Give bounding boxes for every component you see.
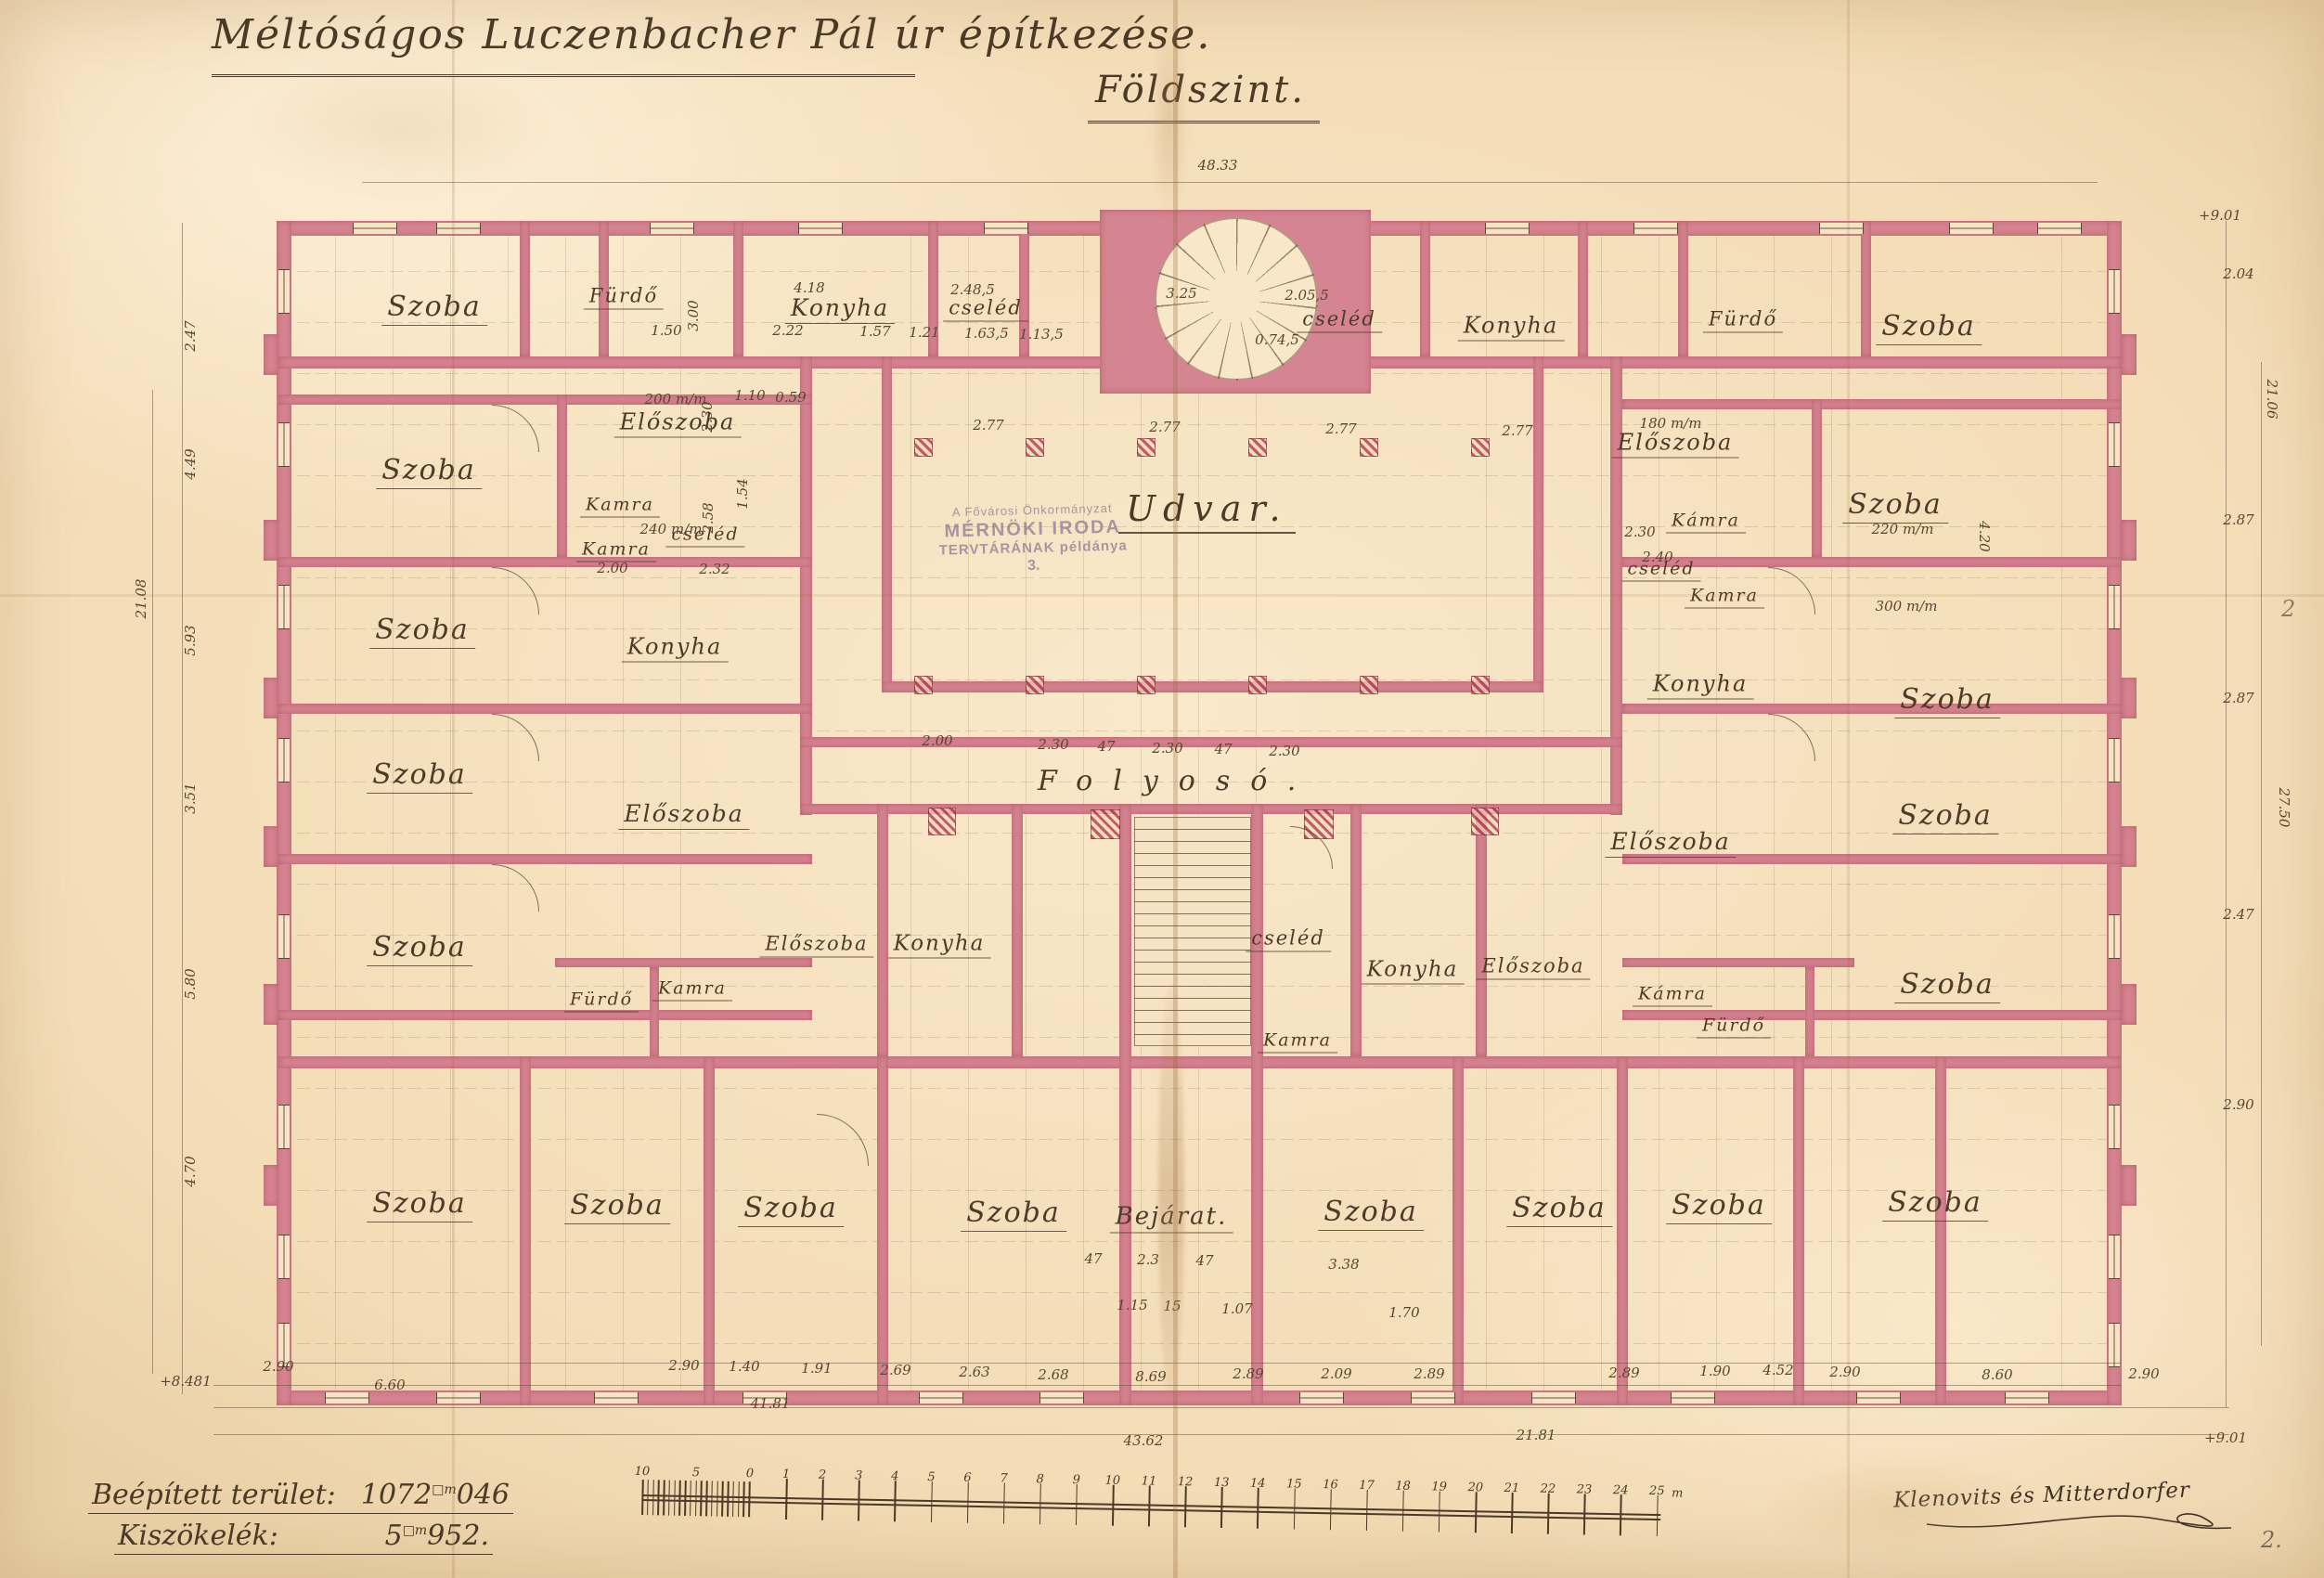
scale-bar-major-tick bbox=[1656, 1495, 1658, 1536]
wall bbox=[1533, 356, 1543, 692]
window-opening bbox=[2109, 738, 2120, 783]
scale-bar-label: 23 bbox=[1577, 1482, 1593, 1496]
room-label: Szoba bbox=[1666, 1189, 1772, 1224]
dimension-label: 2.90 bbox=[668, 1357, 699, 1374]
window-opening bbox=[2037, 223, 2082, 234]
scale-bar-minor-tick bbox=[652, 1480, 654, 1515]
wall bbox=[277, 1390, 2121, 1405]
wall bbox=[264, 678, 278, 718]
scale-bar-major-tick bbox=[1620, 1494, 1621, 1535]
room-label: cseléd bbox=[943, 297, 1028, 322]
window-opening bbox=[325, 1392, 369, 1403]
scale-bar-major-tick bbox=[967, 1482, 969, 1523]
scale-bar-minor-tick bbox=[668, 1481, 670, 1516]
title-underline bbox=[212, 74, 915, 77]
wall bbox=[264, 520, 278, 561]
dimension-line bbox=[2226, 221, 2227, 1407]
dimension-label: 2.89 bbox=[1233, 1365, 1263, 1382]
scale-bar-line bbox=[641, 1494, 1660, 1516]
room-label: Konyha bbox=[1362, 958, 1465, 985]
room-label: Kámra bbox=[1666, 511, 1746, 534]
scale-bar-major-tick bbox=[1547, 1494, 1549, 1534]
dimension-label: 4.18 bbox=[794, 279, 824, 296]
dimension-label: 47 bbox=[1195, 1252, 1213, 1269]
scale-bar-major-tick bbox=[785, 1479, 787, 1520]
wall bbox=[264, 1165, 278, 1206]
room-label: Szoba bbox=[376, 454, 482, 489]
dimension-label: 4.20 bbox=[1976, 521, 1993, 551]
room-label: Előszoba bbox=[759, 933, 873, 958]
dimension-label: 1.21 bbox=[909, 324, 939, 341]
wall bbox=[278, 1010, 812, 1020]
dimension-label: 2.58 bbox=[700, 502, 717, 533]
window-opening bbox=[278, 738, 290, 783]
wall bbox=[1812, 399, 1822, 557]
dimension-label: 1.90 bbox=[1699, 1363, 1730, 1379]
projection-row: Kiszökelék: 5□m952. bbox=[114, 1520, 493, 1555]
hatched-pier bbox=[1137, 676, 1156, 694]
dimension-label: 21.08 bbox=[133, 579, 149, 619]
dimension-label: 15 bbox=[1163, 1298, 1181, 1314]
dimension-label: 3.25 bbox=[1166, 285, 1196, 302]
room-label: Szoba bbox=[1318, 1196, 1424, 1231]
scale-bar-label: 17 bbox=[1359, 1479, 1375, 1493]
scale-bar-minor-tick bbox=[641, 1480, 643, 1515]
scale-bar-minor-tick bbox=[705, 1481, 707, 1516]
dimension-label: 27.50 bbox=[2276, 788, 2292, 828]
hatched-pier bbox=[1360, 438, 1378, 457]
wall bbox=[520, 1056, 531, 1405]
wall bbox=[1678, 221, 1688, 356]
hatched-pier bbox=[1248, 676, 1267, 694]
wall bbox=[2122, 520, 2137, 561]
wall bbox=[264, 334, 278, 375]
window-opening bbox=[2109, 1105, 2120, 1149]
dimension-line bbox=[213, 1434, 2229, 1435]
dimension-label: 43.62 bbox=[1124, 1432, 1164, 1449]
wall bbox=[1350, 804, 1362, 1056]
window-opening bbox=[1671, 1392, 1715, 1403]
dimension-label: +9.01 bbox=[2204, 1429, 2247, 1446]
wall bbox=[733, 221, 743, 356]
scale-bar-label: 24 bbox=[1613, 1483, 1629, 1497]
room-label: Konyha bbox=[1458, 313, 1565, 342]
wall bbox=[1793, 1056, 1804, 1405]
wall bbox=[2122, 334, 2137, 375]
room-label: Szoba bbox=[961, 1196, 1066, 1232]
dimension-label: 48.33 bbox=[1198, 157, 1238, 174]
wall bbox=[1012, 804, 1023, 1056]
scale-bar-label: 12 bbox=[1178, 1475, 1194, 1489]
room-label: Kamra bbox=[652, 978, 732, 1002]
dimension-label: 2.77 bbox=[1149, 419, 1180, 435]
scale-bar-major-tick bbox=[1148, 1486, 1150, 1527]
scale-bar-major-tick bbox=[1039, 1483, 1041, 1524]
dimension-label: 2.22 bbox=[772, 322, 803, 339]
scale-bar-major-tick bbox=[1184, 1486, 1186, 1527]
room-label: Szoba bbox=[1894, 968, 2000, 1003]
sqm-unit: □m bbox=[403, 1523, 428, 1538]
window-opening bbox=[1819, 223, 1864, 234]
scale-bar-major-tick bbox=[1003, 1483, 1005, 1524]
scale-bar-minor-tick bbox=[678, 1481, 680, 1516]
scale-bar-major-tick bbox=[1220, 1487, 1222, 1528]
dimension-label: 41.81 bbox=[751, 1395, 791, 1412]
hatched-pier bbox=[1471, 808, 1499, 835]
window-opening bbox=[353, 223, 397, 234]
scale-bar-label: 14 bbox=[1250, 1477, 1266, 1491]
wall bbox=[1622, 704, 2122, 714]
room-label: Szoba bbox=[1842, 488, 1948, 524]
scale-bar-minor-tick bbox=[732, 1481, 734, 1517]
dimension-label: +8.481 bbox=[160, 1373, 212, 1390]
window-opening bbox=[1039, 1392, 1084, 1403]
scale-bar-minor-tick bbox=[647, 1480, 649, 1515]
wall bbox=[877, 1056, 888, 1405]
dimension-label: 1.70 bbox=[1388, 1304, 1419, 1321]
wall bbox=[1119, 804, 1131, 1405]
dimension-label: 300 m/m bbox=[1876, 598, 1938, 614]
dimension-label: 1.13,5 bbox=[1019, 326, 1064, 343]
scale-bar-label: 4 bbox=[891, 1469, 899, 1483]
dimension-label: 2.30 bbox=[1269, 743, 1299, 759]
dimension-label: 1.91 bbox=[801, 1360, 832, 1377]
dimension-label: 2.32 bbox=[699, 561, 729, 577]
scale-bar-minor-tick bbox=[727, 1481, 729, 1517]
scale-bar-major-tick bbox=[894, 1481, 896, 1521]
dimension-label: 2.47 bbox=[182, 320, 199, 351]
scale-bar-minor-tick bbox=[721, 1481, 723, 1517]
room-label: Fürdő bbox=[1703, 308, 1783, 333]
dimension-label: 2.89 bbox=[1608, 1365, 1639, 1381]
dimension-label: 2.47 bbox=[2223, 906, 2253, 923]
hatched-pier bbox=[1360, 676, 1378, 694]
dimension-label: 2.69 bbox=[880, 1362, 910, 1378]
dimension-label: 200 m/m bbox=[645, 391, 707, 407]
hatched-pier bbox=[914, 438, 933, 457]
sqm-unit: □m bbox=[432, 1482, 457, 1497]
archive-stamp: A Fővárosi Önkormányzat MÉRNÖKI IRODA TE… bbox=[930, 500, 1136, 577]
scale-bar-minor-tick bbox=[711, 1481, 713, 1516]
scale-bar-major-tick bbox=[1402, 1491, 1404, 1532]
scale-bar-label: 6 bbox=[963, 1471, 972, 1485]
hatched-pier bbox=[1471, 438, 1490, 457]
scale-bar-label: 5 bbox=[692, 1466, 701, 1480]
dimension-label: 0.74,5 bbox=[1255, 331, 1299, 348]
window-opening bbox=[278, 585, 290, 629]
window-opening bbox=[2109, 422, 2120, 467]
scale-bar-major-tick bbox=[1439, 1492, 1440, 1533]
dimension-label: 21.06 bbox=[2264, 380, 2280, 420]
dimension-label: 2.30 bbox=[1152, 740, 1182, 757]
scale-bar-major-tick bbox=[1112, 1485, 1114, 1526]
window-opening bbox=[798, 223, 843, 234]
room-label: Szoba bbox=[367, 931, 472, 966]
scale-bar-major-tick bbox=[1257, 1488, 1259, 1529]
wall bbox=[1805, 967, 1814, 1056]
dimension-label: 3.38 bbox=[1328, 1256, 1359, 1273]
dimension-label: 220 m/m bbox=[1872, 521, 1934, 537]
window-opening bbox=[278, 269, 290, 314]
dimension-label: 240 m/m bbox=[640, 521, 703, 537]
hatched-pier bbox=[914, 676, 933, 694]
scale-bar-major-tick bbox=[858, 1481, 859, 1521]
scale-bar-label: 1 bbox=[782, 1468, 791, 1481]
dimension-line bbox=[2261, 362, 2262, 1346]
wall bbox=[1420, 221, 1430, 356]
window-opening bbox=[1485, 223, 1530, 234]
room-label: Konyha bbox=[622, 634, 729, 663]
subtitle-underline bbox=[1088, 121, 1320, 123]
wall bbox=[1617, 1056, 1628, 1405]
dimension-label: 3.00 bbox=[685, 300, 702, 330]
scale-bar-label: 25 bbox=[1649, 1484, 1665, 1498]
dimension-label: 5.80 bbox=[182, 968, 199, 999]
window-opening bbox=[278, 1105, 290, 1149]
hatched-pier bbox=[1137, 438, 1156, 457]
hatched-pier bbox=[1091, 809, 1120, 839]
window-opening bbox=[1856, 1392, 1901, 1403]
window-opening bbox=[1949, 223, 1994, 234]
scale-bar-label: 13 bbox=[1214, 1476, 1230, 1490]
room-label: Szoba bbox=[367, 1187, 472, 1222]
corridor-label: Folyosó. bbox=[1038, 765, 1316, 797]
room-label: Szoba bbox=[367, 758, 472, 794]
room-label: Konyha bbox=[785, 294, 895, 324]
courtyard-label: Udvar. bbox=[1118, 488, 1296, 534]
window-opening bbox=[1411, 1392, 1455, 1403]
scale-bar-label: 10 bbox=[635, 1465, 651, 1479]
wall bbox=[1861, 221, 1871, 356]
scale-bar-major-tick bbox=[821, 1480, 823, 1520]
scale-bar-minor-tick bbox=[700, 1481, 702, 1516]
dimension-label: 2.90 bbox=[2128, 1365, 2159, 1382]
dimension-label: 2.87 bbox=[2223, 690, 2253, 706]
wall bbox=[555, 958, 812, 967]
dimension-label: 4.52 bbox=[1762, 1362, 1793, 1378]
wall bbox=[1622, 958, 1854, 967]
page-number: 2. bbox=[2261, 1527, 2282, 1553]
dimension-label: 0.59 bbox=[775, 389, 806, 406]
dimension-label: 2.30 bbox=[1624, 524, 1655, 540]
wall bbox=[2122, 826, 2137, 867]
wall bbox=[264, 826, 278, 867]
window-opening bbox=[278, 422, 290, 467]
window-opening bbox=[436, 223, 481, 234]
scale-bar-line bbox=[641, 1499, 1660, 1520]
window-opening bbox=[1633, 223, 1678, 234]
scale-bar-label: 15 bbox=[1286, 1477, 1302, 1491]
wall bbox=[704, 1056, 715, 1405]
room-label: Szoba bbox=[1882, 1186, 1988, 1222]
hatched-pier bbox=[928, 808, 956, 835]
dimension-label: 2.48,5 bbox=[950, 281, 995, 298]
scale-bar-label: 10 bbox=[1104, 1474, 1120, 1488]
dimension-line bbox=[213, 1407, 2229, 1408]
hatched-pier bbox=[1471, 676, 1490, 694]
built-area-label: Beépített terület: bbox=[92, 1479, 336, 1511]
scale-bar-label: 5 bbox=[927, 1470, 936, 1484]
dimension-label: 1.15 bbox=[1117, 1297, 1147, 1313]
room-label: Előszoba bbox=[1476, 955, 1590, 980]
room-label: Előszoba bbox=[614, 409, 742, 438]
scale-bar-minor-tick bbox=[738, 1481, 740, 1517]
wall bbox=[278, 557, 812, 567]
scale-bar-unit: m bbox=[1672, 1486, 1684, 1500]
dimension-label: 47 bbox=[1214, 741, 1232, 757]
window-opening bbox=[1299, 1392, 1344, 1403]
window-opening bbox=[278, 914, 290, 959]
dimension-label: 2.00 bbox=[922, 732, 952, 749]
wall bbox=[1622, 399, 2122, 409]
dimension-label: 2.30 bbox=[1038, 736, 1068, 753]
dimension-label: 4.49 bbox=[182, 448, 199, 479]
hatched-pier bbox=[1026, 676, 1044, 694]
dimension-label: 2.05,5 bbox=[1285, 287, 1329, 304]
scale-bar-major-tick bbox=[930, 1481, 932, 1522]
dimension-line bbox=[213, 1385, 2121, 1386]
wall bbox=[800, 804, 1622, 814]
dimension-label: 2.40 bbox=[1642, 549, 1672, 565]
dimension-label: 2.30 bbox=[699, 401, 716, 432]
wall bbox=[1578, 221, 1588, 356]
room-label: Előszoba bbox=[1605, 828, 1736, 858]
wall bbox=[1251, 804, 1263, 1405]
dimension-label: 2.90 bbox=[263, 1358, 293, 1375]
area-summary: Beépített terület: 1072□m046 Kiszökelék:… bbox=[88, 1479, 513, 1555]
scale-bar-label: 7 bbox=[1000, 1471, 1008, 1485]
scale-bar-minor-tick bbox=[674, 1481, 676, 1516]
room-label: Kamra bbox=[1258, 1030, 1337, 1054]
scale-bar-minor-tick bbox=[663, 1480, 665, 1515]
room-label: cseléd bbox=[1246, 927, 1331, 952]
scale-bar-label: 22 bbox=[1541, 1482, 1556, 1496]
room-label: Kamra bbox=[1685, 586, 1764, 609]
scale-bar-minor-tick bbox=[695, 1481, 697, 1516]
window-opening bbox=[1531, 1392, 1576, 1403]
room-label: Szoba bbox=[738, 1192, 844, 1227]
dimension-label: 2.77 bbox=[1325, 420, 1356, 437]
room-label: Szoba bbox=[564, 1189, 670, 1224]
room-label: Kamra bbox=[576, 539, 656, 563]
room-label: Fürdő bbox=[584, 285, 664, 310]
dimension-line bbox=[152, 390, 153, 1374]
dimension-label: 47 bbox=[1084, 1250, 1102, 1267]
dimension-label: 2.68 bbox=[1038, 1366, 1068, 1383]
room-label: Bejárat. bbox=[1110, 1203, 1233, 1234]
scale-bar-major-tick bbox=[1329, 1489, 1331, 1530]
dimension-label: 8.69 bbox=[1135, 1368, 1166, 1385]
wall bbox=[278, 704, 812, 714]
room-label: Szoba bbox=[381, 291, 487, 326]
floor-subtitle: Földszint. bbox=[1095, 69, 1306, 111]
built-area-row: Beépített terület: 1072□m046 bbox=[88, 1479, 513, 1514]
dimension-label: 2.77 bbox=[973, 417, 1003, 433]
wall bbox=[2122, 1165, 2137, 1206]
window-opening bbox=[2109, 585, 2120, 629]
dimension-label: 5.93 bbox=[182, 625, 199, 655]
dimension-label: 1.57 bbox=[859, 323, 890, 340]
dimension-label: 2.77 bbox=[1502, 422, 1532, 439]
scale-bar-label: 0 bbox=[746, 1467, 755, 1481]
scale-bar-label: 2 bbox=[819, 1468, 827, 1482]
dimension-label: 2.63 bbox=[959, 1364, 989, 1380]
wall bbox=[2122, 678, 2137, 718]
dimension-label: 1.10 bbox=[734, 387, 765, 404]
dimension-line bbox=[362, 182, 2098, 183]
scale-bar-label: 21 bbox=[1504, 1481, 1519, 1495]
dimension-label: 1.63,5 bbox=[964, 325, 1009, 342]
wall bbox=[882, 681, 1543, 692]
dimension-label: 3.51 bbox=[182, 783, 199, 813]
window-opening bbox=[2109, 914, 2120, 959]
wall bbox=[1476, 804, 1487, 1056]
scale-bar-label: 19 bbox=[1431, 1480, 1447, 1494]
scale-bar-label: 16 bbox=[1323, 1478, 1338, 1492]
dimension-label: 180 m/m bbox=[1640, 415, 1702, 432]
dimension-label: 21.81 bbox=[1517, 1427, 1556, 1443]
dimension-label: 2.04 bbox=[2223, 265, 2253, 282]
scale-bar-major-tick bbox=[1583, 1494, 1585, 1535]
scale-bar-major-tick bbox=[1076, 1484, 1078, 1525]
wall bbox=[520, 221, 530, 356]
scale-bar-label: 11 bbox=[1142, 1474, 1157, 1488]
room-label: Konyha bbox=[888, 932, 991, 959]
scale-bar-major-tick bbox=[1511, 1493, 1513, 1533]
dimension-label: 2.90 bbox=[2223, 1096, 2253, 1113]
dimension-label: 2.90 bbox=[1829, 1364, 1860, 1380]
room-label: Előszoba bbox=[618, 800, 749, 830]
scale-bar-major-tick bbox=[1475, 1492, 1477, 1533]
room-label: Fürdő bbox=[564, 989, 639, 1013]
wall bbox=[557, 394, 567, 557]
drawing-sheet: Méltóságos Luczenbacher Pál úr építkezés… bbox=[0, 0, 2324, 1578]
dimension-label: 1.40 bbox=[729, 1358, 759, 1375]
hatched-pier bbox=[1248, 438, 1267, 457]
scale-bar-label: 3 bbox=[855, 1468, 863, 1482]
main-staircase bbox=[1134, 817, 1251, 1046]
window-opening bbox=[2109, 269, 2120, 314]
window-opening bbox=[919, 1392, 963, 1403]
dimension-label: +9.01 bbox=[2199, 207, 2241, 224]
dimension-label: 4.70 bbox=[182, 1156, 199, 1186]
room-label: Konyha bbox=[1647, 671, 1754, 700]
drawing-title: Méltóságos Luczenbacher Pál úr építkezés… bbox=[212, 11, 1211, 58]
scale-bar-minor-tick bbox=[684, 1481, 686, 1516]
room-label: Szoba bbox=[1506, 1192, 1612, 1227]
room-label: Fürdő bbox=[1697, 1015, 1771, 1039]
signature-flourish bbox=[1923, 1504, 2239, 1541]
scale-bar-major-tick bbox=[1366, 1490, 1368, 1531]
wall bbox=[2122, 984, 2137, 1025]
scale-bar-minor-tick bbox=[717, 1481, 718, 1517]
margin-number: 2 bbox=[2281, 596, 2295, 622]
wall bbox=[1452, 1056, 1464, 1405]
scale-bar-label: 8 bbox=[1036, 1472, 1044, 1486]
scale-bar-label: 18 bbox=[1395, 1480, 1411, 1494]
window-opening bbox=[2109, 1323, 2120, 1367]
room-label: Szoba bbox=[1892, 799, 1998, 834]
scale-bar-label: 9 bbox=[1072, 1473, 1080, 1487]
room-label: Szoba bbox=[1894, 683, 2000, 718]
scale-bar-major-tick bbox=[1293, 1489, 1295, 1530]
scale-bar-minor-tick bbox=[690, 1481, 691, 1516]
dimension-label: 47 bbox=[1097, 738, 1115, 755]
window-opening bbox=[594, 1392, 639, 1403]
wall bbox=[278, 1056, 2121, 1068]
scale-bar-minor-tick bbox=[748, 1481, 750, 1517]
dimension-label: 8.60 bbox=[1982, 1366, 2012, 1383]
